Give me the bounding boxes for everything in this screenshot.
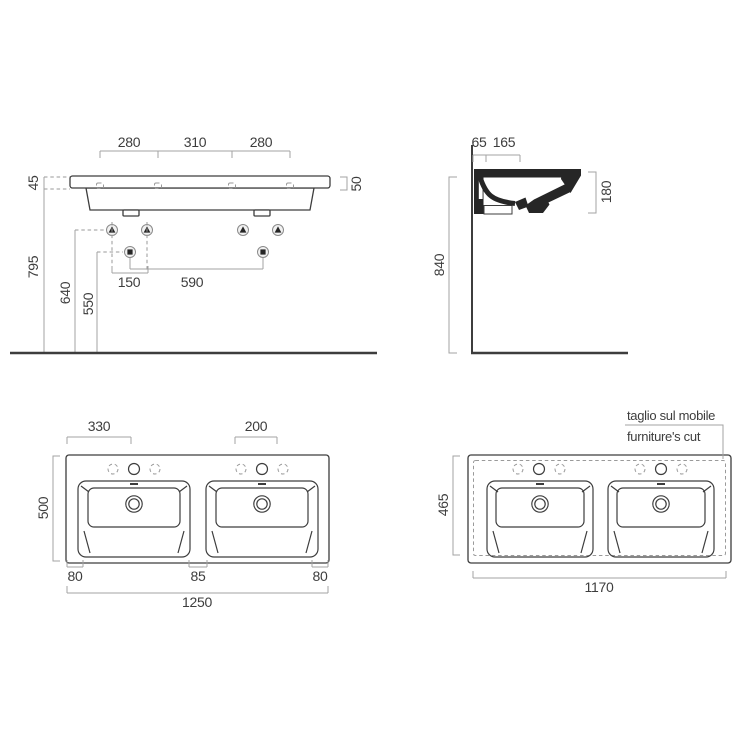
square-drain-icon	[125, 247, 269, 258]
dim-hole-groups: 330 200	[67, 418, 277, 444]
dim-label-80-left: 80	[68, 568, 83, 584]
dim-label-795: 795	[25, 255, 41, 278]
note-line-english: furniture's cut	[627, 429, 701, 444]
dim-label-500: 500	[35, 496, 51, 519]
dim-basin-height: 180	[588, 172, 614, 213]
dim-label-590: 590	[181, 274, 204, 290]
dim-fix-spacing: 150	[112, 266, 148, 290]
dim-label-640: 640	[57, 281, 73, 304]
dim-drain-spacing: 590	[130, 258, 263, 290]
dim-label-45: 45	[25, 175, 41, 190]
dim-label-180: 180	[598, 180, 614, 203]
side-section-view: 65 165 840 180	[431, 134, 628, 353]
fixing-markers	[75, 222, 284, 272]
dim-label-280-right: 280	[250, 134, 273, 150]
dim-label-165: 165	[493, 134, 516, 150]
dim-label-465: 465	[435, 493, 451, 516]
dim-label-80-right: 80	[313, 568, 328, 584]
dim-label-840: 840	[431, 253, 447, 276]
dim-hole-offsets: 65 165	[472, 134, 520, 162]
washbasin-dimension-drawing: 280 310 280 45 795 50	[0, 0, 750, 750]
dim-label-1250: 1250	[182, 594, 212, 610]
dim-faucet-spacing: 280 310 280	[100, 134, 290, 158]
note-line-italian: taglio sul mobile	[627, 408, 715, 423]
dim-label-280-left: 280	[118, 134, 141, 150]
dim-label-330: 330	[88, 418, 111, 434]
basin-section-profile	[474, 169, 581, 214]
basin-front-outline	[70, 176, 330, 216]
technical-drawing-sheet: 280 310 280 45 795 50	[0, 0, 750, 750]
dim-cut-width: 1170	[473, 571, 726, 595]
dim-mounting-height: 840	[431, 177, 457, 353]
dim-depth: 500	[35, 456, 60, 561]
countertop-outline	[468, 455, 731, 563]
dim-bottom-chain: 80 85 80 1250	[67, 560, 328, 610]
dim-label-200: 200	[245, 418, 268, 434]
plan-view: 330 200 500 80 85 80 1250	[35, 418, 329, 610]
dim-label-1170: 1170	[585, 579, 614, 595]
countertop-outline	[66, 455, 329, 563]
furniture-cut-note: taglio sul mobile furniture's cut	[625, 408, 723, 459]
dim-label-550: 550	[80, 292, 96, 315]
mounting-tab	[254, 210, 270, 216]
triangle-fixing-icon	[107, 225, 284, 236]
dim-thickness-and-height: 45 795	[25, 175, 70, 353]
dim-cut-depth: 465	[435, 456, 460, 555]
dim-label-150: 150	[118, 274, 141, 290]
dim-label-50: 50	[348, 176, 364, 191]
front-elevation-view: 280 310 280 45 795 50	[10, 134, 377, 353]
mounting-tab	[123, 210, 139, 216]
dim-label-65: 65	[472, 134, 487, 150]
furniture-cut-view: taglio sul mobile furniture's cut 465 11…	[435, 408, 731, 595]
dim-fixing-heights: 640 550	[57, 230, 97, 353]
dim-label-310: 310	[184, 134, 207, 150]
dim-front-edge: 50	[340, 176, 364, 191]
dim-label-85: 85	[191, 568, 206, 584]
